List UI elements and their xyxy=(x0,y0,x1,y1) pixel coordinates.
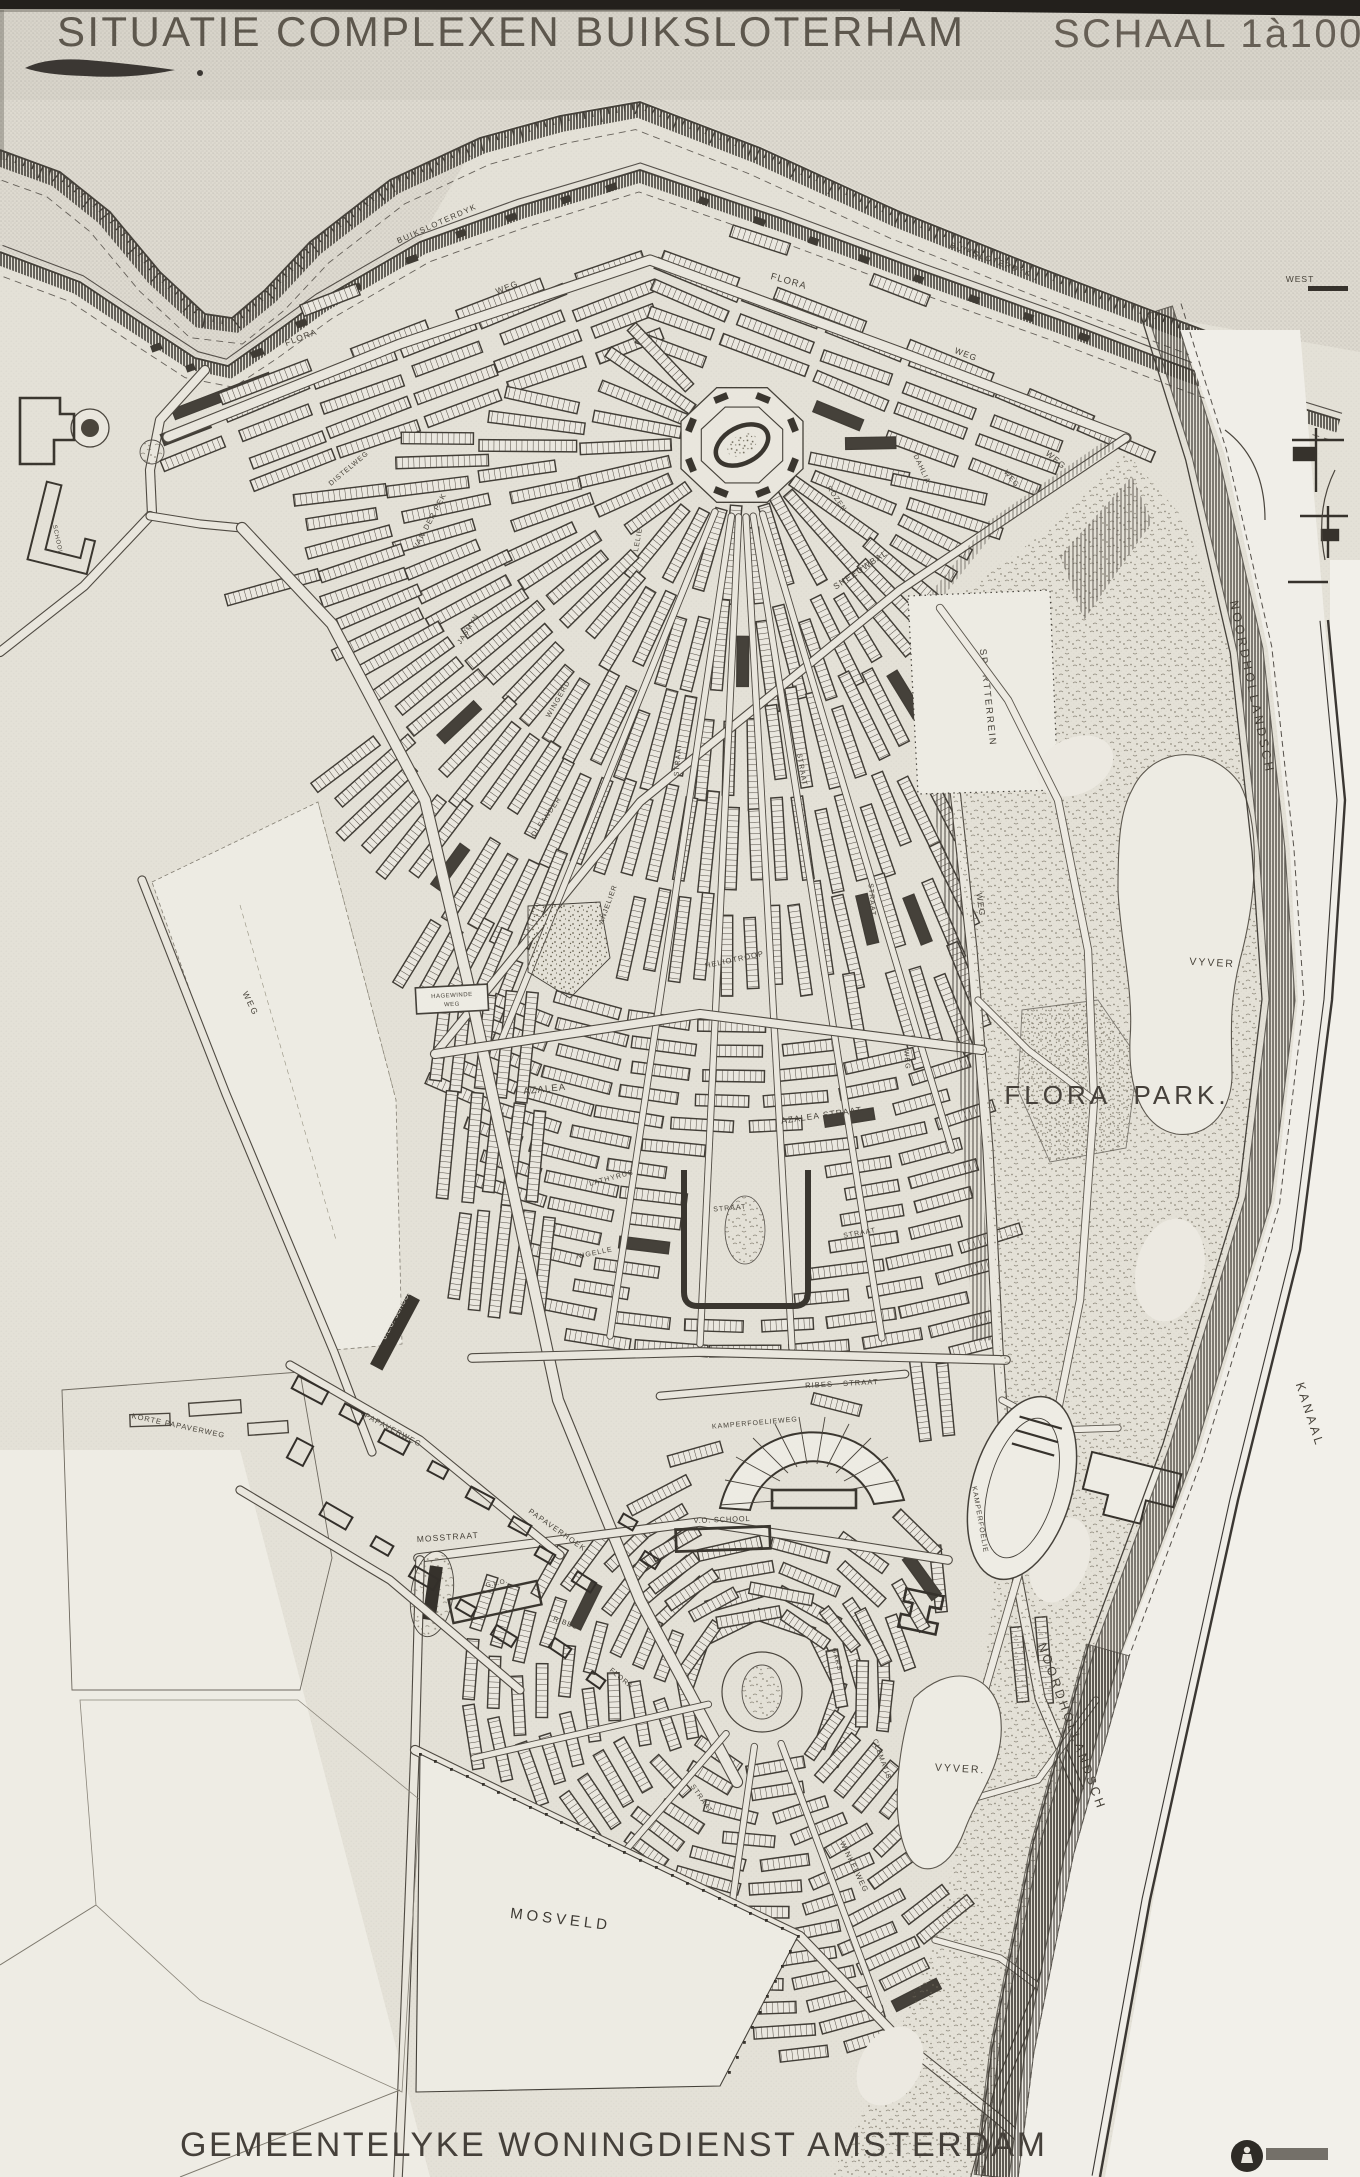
svg-text:VYVER: VYVER xyxy=(1189,956,1235,970)
svg-text:SCHAAL 1à100: SCHAAL 1à100 xyxy=(1053,12,1360,56)
svg-text:FLORA PARK.: FLORA PARK. xyxy=(1004,1080,1229,1110)
svg-text:GEMEENTELYKE WONINGDIENST AMST: GEMEENTELYKE WONINGDIENST AMSTERDAM xyxy=(180,2126,1048,2164)
svg-text:SITUATIE COMPLEXEN BUIKSLOTERH: SITUATIE COMPLEXEN BUIKSLOTERHAM xyxy=(57,8,965,55)
svg-text:WEG: WEG xyxy=(444,1002,460,1009)
svg-text:WEST: WEST xyxy=(1286,274,1315,284)
